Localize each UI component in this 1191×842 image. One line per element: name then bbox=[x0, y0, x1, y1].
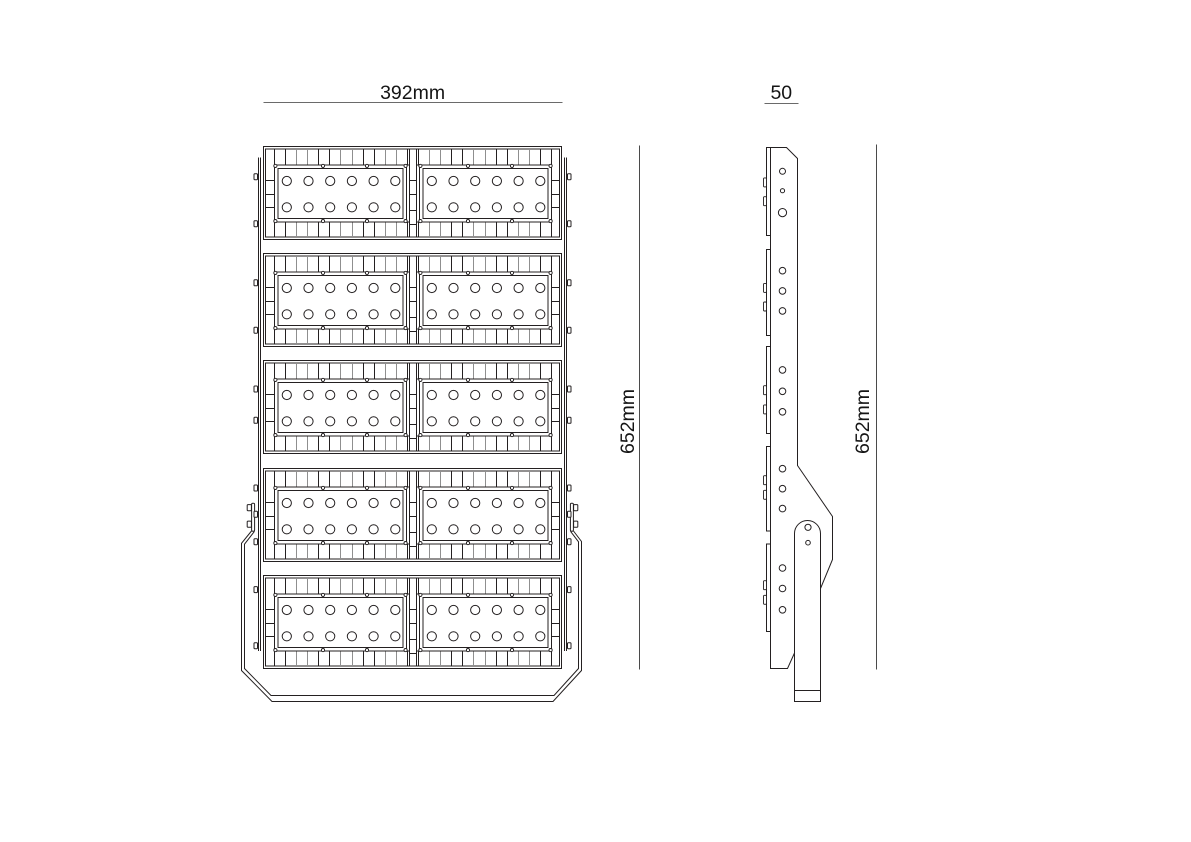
svg-text:652mm: 652mm bbox=[617, 389, 639, 454]
svg-text:50: 50 bbox=[770, 82, 792, 104]
svg-text:652mm: 652mm bbox=[852, 389, 874, 454]
svg-text:392mm: 392mm bbox=[380, 82, 445, 104]
